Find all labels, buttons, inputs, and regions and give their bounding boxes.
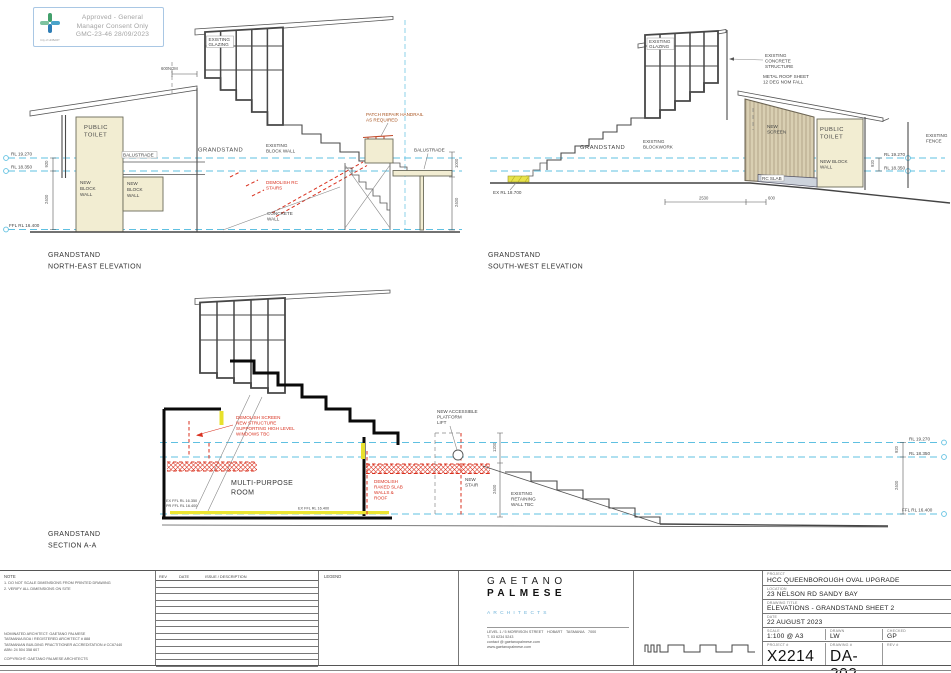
- section-dim-2400: 2400: [492, 484, 497, 494]
- section-demo-screen-2: NEW STRUCTURE: [236, 421, 276, 426]
- ne-dim-2400: 2400: [44, 194, 49, 204]
- section-retaining-label-1: EXISTING: [511, 491, 533, 496]
- brand-architects-label: ARCHITECTS: [487, 611, 633, 616]
- section-new-stair-label-2: STAIR: [465, 483, 479, 488]
- sw-fence-label-2: FENCE: [926, 139, 942, 144]
- sw-new-screen-label-2: SCREEN: [767, 130, 786, 135]
- date-col-header: DATE: [179, 574, 205, 579]
- date-value: 22 AUGUST 2023: [767, 619, 947, 626]
- drawing-number-label: DRAWING #: [830, 643, 878, 647]
- sw-concrete-label-1: EXISTING: [765, 53, 787, 58]
- ne-patch-label-1: PATCH REPAIR HANDRAIL: [366, 112, 424, 117]
- sw-grandstand-label: GRANDSTAND: [580, 145, 625, 151]
- scale-value: 1:100 @ A3: [767, 633, 821, 640]
- ne-elevation-drawing: RL 19.270 RL 18.350 FFL RL 16.400 920 24…: [0, 0, 480, 285]
- sw-bottom-dimensions: 2530 600: [665, 196, 776, 206]
- ne-nbw1-3: WALL: [80, 192, 93, 197]
- section-dim-1200: 1200: [492, 442, 497, 452]
- section-lift-label-2: PLATFORM: [437, 415, 462, 420]
- section-dim-920: 920: [894, 445, 899, 453]
- ne-left-dimension: 920 2400: [44, 158, 56, 230]
- project-number-field: PROJECT # X2214: [763, 643, 825, 665]
- ne-ffl-label: FFL RL 16.400: [9, 223, 40, 228]
- section-demo-screen-4: WINDOWS TBC: [236, 432, 270, 437]
- revision-row: [156, 614, 318, 621]
- ne-nbw1-2: BLOCK: [80, 186, 97, 191]
- revision-row: [156, 594, 318, 601]
- ne-ebw-label-1: EXISTING: [266, 143, 288, 148]
- sw-concrete-structure-label: EXISTING CONCRETE STRUCTURE: [729, 53, 793, 69]
- legend-header: LEGEND: [324, 574, 453, 579]
- ne-demo-stairs-label-1: DEMOLISH RC: [266, 180, 299, 185]
- ne-landing-balustrade: BALUSTRADE: [365, 139, 452, 230]
- ne-dim-920: 920: [44, 160, 49, 168]
- checked-value: GP: [887, 633, 947, 640]
- ne-rl2-label: RL 18.350: [11, 165, 32, 170]
- revision-table: REV DATE ISSUE / DESCRIPTION: [155, 571, 318, 665]
- project-value: HCC QUEENBOROUGH OVAL UPGRADE: [767, 577, 947, 584]
- scale-field: SCALE 1:100 @ A3: [763, 629, 825, 640]
- section-new-stair-label-1: NEW: [465, 477, 476, 482]
- revision-row: [156, 607, 318, 614]
- section-demo-slab-1: DEMOLISH: [374, 479, 398, 484]
- rev-col-header: REV: [159, 574, 179, 579]
- issue-col-header: ISSUE / DESCRIPTION: [205, 574, 247, 579]
- sw-dim-2530: 2530: [699, 196, 709, 201]
- sw-dim-600: 600: [768, 196, 776, 201]
- project-field: PROJECT HCC QUEENBOROUGH OVAL UPGRADE: [763, 571, 951, 586]
- section-retaining-label-3: WALL TBC: [511, 502, 534, 507]
- section-demolition: DEMOLISH SCREEN NEW STRUCTURE SUPPORTING…: [167, 415, 490, 515]
- ne-toilet-label-1: PUBLIC: [84, 125, 108, 131]
- date-label: DATE: [767, 615, 947, 619]
- revision-row: [156, 660, 318, 667]
- ne-patch-repair: PATCH REPAIR HANDRAIL AS REQUIRED: [363, 112, 424, 140]
- ne-patch-label-2: AS REQUIRED: [366, 118, 398, 123]
- ne-grandstand-label: GRANDSTAND: [198, 148, 243, 154]
- architect-address: LEVEL 1 / 5 MORRISON STREET HOBART TASMA…: [487, 627, 629, 650]
- revision-row: [156, 601, 318, 608]
- section-demo-slab-3: WALLS &: [374, 490, 394, 495]
- section-lift-label-3: LIFT: [437, 420, 447, 425]
- ne-nbw2-2: BLOCK: [127, 187, 144, 192]
- revision-row: [156, 647, 318, 654]
- sw-title-line-1: GRANDSTAND: [488, 252, 540, 259]
- sw-right-dimension: 920 RL 19.270 RL 18.350: [870, 152, 905, 171]
- section-room-label-2: ROOM: [231, 490, 254, 497]
- sw-elevation-drawing: EXISTING GLAZING EXISTING CONCRETE STRUC…: [480, 0, 951, 285]
- rev-number-field: REV #: [882, 643, 951, 665]
- sw-blockwork-label-1: EXISTING: [643, 139, 665, 144]
- section-demo-slab-2: RAKED SLAB: [374, 485, 403, 490]
- location-label: LOCATION: [767, 587, 947, 591]
- sw-dim-920: 920: [870, 159, 875, 167]
- ne-demolition-stairs: DEMOLISH RC STAIRS: [230, 162, 367, 217]
- section-rl1-label: RL 19.270: [909, 437, 930, 442]
- sw-rl2-label: RL 18.350: [884, 166, 905, 171]
- note-item-2: 2. VERIFY ALL DIMENSIONS ON SITE: [4, 587, 151, 593]
- sw-toilet-label-1: PUBLIC: [820, 127, 844, 133]
- ne-dim-600nom: 600NOM: [161, 66, 178, 71]
- revision-row: [156, 627, 318, 634]
- ne-concrete-wall-label-1: CONCRETE: [267, 211, 293, 216]
- ne-dim-1000: 1000: [454, 158, 459, 168]
- drawing-title-value: ELEVATIONS - GRANDSTAND SHEET 2: [767, 605, 947, 612]
- ne-balustrade-right-label: BALUSTRADE: [414, 148, 445, 153]
- section-title-line-2: SECTION A-A: [48, 543, 97, 550]
- legend-column: LEGEND: [318, 571, 458, 665]
- title-block: NOTE 1. DO NOT SCALE DIMENSIONS FROM PRI…: [0, 570, 951, 666]
- drawing-number-field: DRAWING # DA-202: [825, 643, 882, 665]
- scale-drawn-checked-row: SCALE 1:100 @ A3 DRAWN LW CHECKED GP: [763, 628, 951, 642]
- revision-header: REV DATE ISSUE / DESCRIPTION: [156, 571, 318, 581]
- section-dim-2400r: 2400: [894, 480, 899, 490]
- section-aa-drawing: DEMOLISH SCREEN NEW STRUCTURE SUPPORTING…: [0, 285, 951, 570]
- section-rl2-label: RL 18.350: [909, 451, 930, 456]
- project-number-value: X2214: [767, 648, 821, 666]
- ne-nbw1-1: NEW: [80, 180, 91, 185]
- checked-label: CHECKED: [887, 629, 947, 633]
- scale-label: SCALE: [767, 629, 821, 633]
- sw-title-line-2: SOUTH-WEST ELEVATION: [488, 264, 583, 271]
- sw-nbw-label-2: WALL: [820, 165, 833, 170]
- checked-field: CHECKED GP: [882, 629, 951, 640]
- notes-header: NOTE: [4, 574, 151, 579]
- ne-glazing-grid: EXISTING GLAZING: [205, 28, 283, 126]
- sw-public-toilet: PUBLIC TOILET NEW BLOCK WALL: [817, 117, 865, 190]
- scale-bar-column: [633, 571, 762, 665]
- section-mid-dimension: 1200 2400: [492, 433, 503, 517]
- ne-nbw2-1: NEW: [127, 181, 138, 186]
- ne-title-line-2: NORTH-EAST ELEVATION: [48, 264, 141, 271]
- ne-toilet-label-2: TOILET: [84, 133, 107, 139]
- ne-stand-steps: [283, 125, 365, 161]
- revision-row: [156, 640, 318, 647]
- ne-ebw-label-2: BLOCK WALL: [266, 149, 296, 154]
- ne-right-dimension: 1000 2400: [449, 152, 459, 230]
- ne-slope-line: [223, 187, 340, 230]
- brand-name-line-2: PALMESE: [487, 588, 633, 599]
- section-lift-label-1: NEW ACCESSIBLE: [437, 409, 478, 414]
- sw-fence-label-1: EXISTING: [926, 133, 948, 138]
- section-floor-highlight: [170, 511, 389, 514]
- revision-row: [156, 588, 318, 595]
- sw-nbw-label-1: NEW BLOCK: [820, 159, 849, 164]
- drawing-number-row: PROJECT # X2214 DRAWING # DA-202 REV #: [763, 642, 951, 666]
- ne-nbw2-3: WALL: [127, 193, 140, 198]
- date-field: DATE 22 AUGUST 2023: [763, 614, 951, 628]
- ne-stair-structure: [345, 163, 390, 230]
- sw-concrete-label-3: STRUCTURE: [765, 64, 793, 69]
- drawn-label: DRAWN: [830, 629, 878, 633]
- ne-public-toilet: PUBLIC TOILET NEW BLOCK WALL NEW BLOCK W…: [62, 115, 205, 232]
- section-ex-ffl-left-2: PR FFL RL 16.400: [166, 504, 197, 508]
- section-glazing-grid: [200, 298, 285, 393]
- drawing-title-label: DRAWING TITLE: [767, 601, 947, 605]
- copyright-line: COPYRIGHT: GAETANO PALMESE ARCHITECTS: [4, 657, 151, 661]
- section-ex-ffl-left-1: EX FFL RL 16.350: [166, 499, 197, 503]
- ne-demo-stairs-label-2: STAIRS: [266, 186, 282, 191]
- notes-column: NOTE 1. DO NOT SCALE DIMENSIONS FROM PRI…: [0, 571, 155, 665]
- scale-bar-icon: [639, 633, 759, 661]
- sw-rc-slab-label: RC SLAB: [762, 176, 782, 181]
- section-title-line-1: GRANDSTAND: [48, 531, 100, 538]
- ne-title-line-1: GRANDSTAND: [48, 252, 100, 259]
- sw-ex-rl-label: EX RL 18.700: [493, 190, 522, 195]
- sw-existing-fence: EXISTING FENCE: [908, 122, 948, 188]
- revision-row: [156, 621, 318, 628]
- ne-rl1-label: RL 19.270: [11, 152, 32, 157]
- drawing-sheet: City of HOBART Approved - General Manage…: [0, 0, 951, 673]
- drawn-value: LW: [830, 633, 878, 640]
- drawing-title-field: DRAWING TITLE ELEVATIONS - GRANDSTAND SH…: [763, 600, 951, 614]
- revision-row: [156, 581, 318, 588]
- sw-toilet-label-2: TOILET: [820, 135, 843, 141]
- title-block-fields: PROJECT HCC QUEENBOROUGH OVAL UPGRADE LO…: [762, 571, 951, 665]
- section-demo-screen-3: SUPPORTING HIGH LEVEL: [236, 426, 295, 431]
- rev-number-label: REV #: [887, 643, 947, 647]
- ne-balustrade-left-label: BALUSTRADE: [123, 153, 154, 158]
- sw-lower-stair: [526, 163, 547, 176]
- brand-name-line-1: GAETANO: [487, 576, 633, 587]
- sw-glazing-label-2: GLAZING: [649, 44, 670, 49]
- section-yellow-post-right: [361, 443, 365, 459]
- project-number-label: PROJECT #: [767, 643, 821, 647]
- section-ex-ffl-mid: EX FFL RL 16.400: [298, 507, 329, 511]
- revision-row: [156, 634, 318, 641]
- sw-metal-roof-label-2: 12 DEG NOM FALL: [763, 80, 804, 85]
- sw-existing-slab: EX RL 18.700: [493, 176, 529, 195]
- section-room-label-1: MULTI-PURPOSE: [231, 480, 293, 487]
- sw-concrete-label-2: CONCRETE: [765, 59, 791, 64]
- architect-brand: GAETANO PALMESE ARCHITECTS LEVEL 1 / 5 M…: [458, 571, 633, 665]
- revision-row: [156, 654, 318, 661]
- sw-glazing-grid: EXISTING GLAZING: [645, 31, 718, 118]
- location-value: 23 NELSON RD SANDY BAY: [767, 591, 947, 598]
- ne-glazing-label-2: GLAZING: [209, 42, 230, 47]
- section-right-dimension: 920 2400 RL 19.270 RL 18.350 FFL RL 16.4…: [894, 437, 933, 515]
- ne-dim-2400b: 2400: [454, 197, 459, 207]
- project-label: PROJECT: [767, 572, 947, 576]
- section-retaining-label-2: RETAINING: [511, 497, 536, 502]
- sw-rl1-label: RL 19.270: [884, 152, 905, 157]
- sw-stand-steps: [547, 118, 645, 170]
- section-level-lines: [160, 440, 946, 516]
- sheet-bottom-margin-line: [0, 670, 951, 671]
- section-platform-lift: NEW ACCESSIBLE PLATFORM LIFT: [435, 409, 478, 515]
- section-demo-slab-4: ROOF: [374, 496, 387, 501]
- ne-concrete-wall-label-2: WALL: [267, 217, 280, 222]
- section-yellow-post-left: [220, 411, 224, 425]
- architect-line-4: ABN: 24 504 358 607: [4, 648, 151, 653]
- section-demo-screen-1: DEMOLISH SCREEN: [236, 415, 280, 420]
- sw-new-screen: NEW SCREEN: [745, 99, 814, 185]
- address-line-4: www.gaetanopalmese.com: [487, 645, 629, 650]
- drawn-field: DRAWN LW: [825, 629, 882, 640]
- section-ffl-label: FFL RL 16.400: [902, 508, 933, 513]
- sw-metal-roof-label-1: METAL ROOF SHEET: [763, 74, 809, 79]
- architect-registration: NOMINATED ARCHITECT: GAETANO PALMESE TAS…: [4, 632, 151, 653]
- sw-ground-line: [490, 183, 950, 203]
- section-room-outline: [162, 361, 398, 519]
- sw-blockwork-label-2: BLOCKWORK: [643, 145, 674, 150]
- sw-new-screen-label-1: NEW: [767, 124, 778, 129]
- location-field: LOCATION 23 NELSON RD SANDY BAY: [763, 586, 951, 600]
